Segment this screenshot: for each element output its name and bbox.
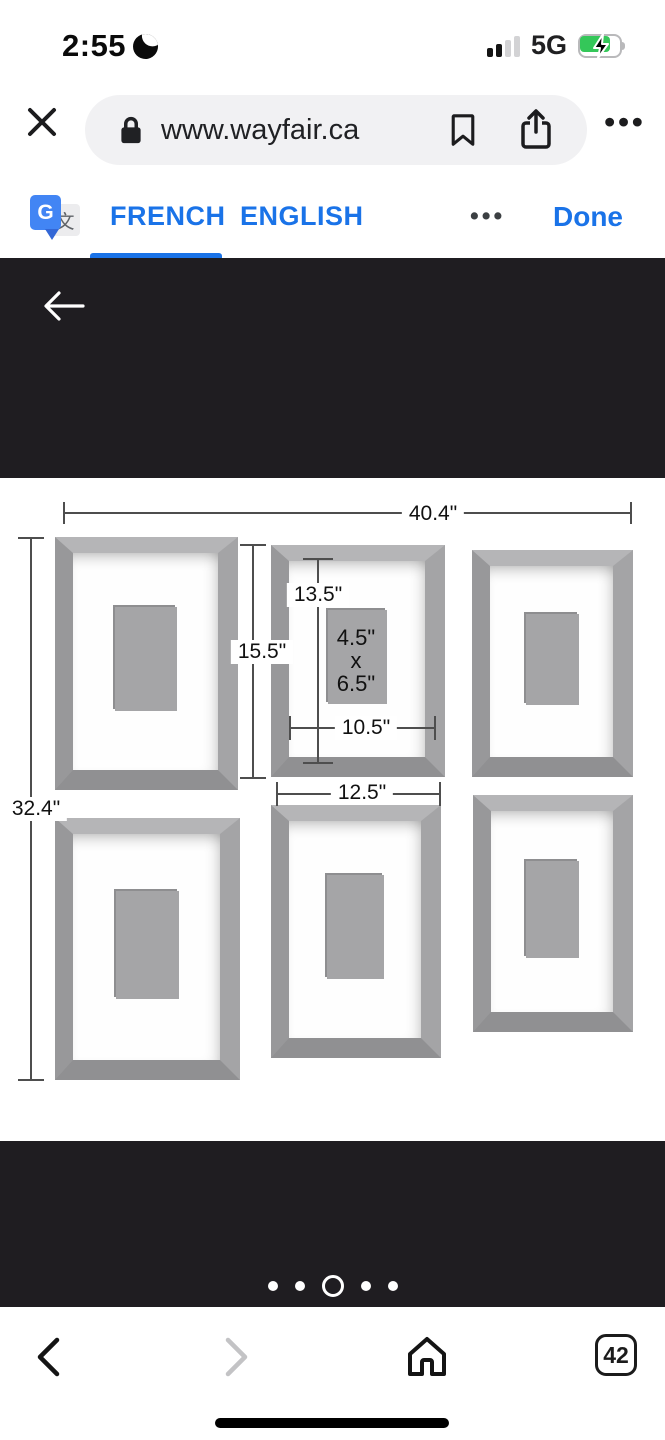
picture-frame — [473, 795, 633, 1032]
home-icon — [403, 1334, 451, 1380]
browser-bottom-nav: 42 — [0, 1307, 665, 1440]
dimension-frame-width: 12.5" — [331, 781, 393, 805]
product-dimensions-image: 40.4" 32.4" 15.5" 13.5" 4.5" x 6.5" 10.5… — [0, 478, 665, 1141]
tab-target-language[interactable]: ENGLISH — [240, 180, 364, 253]
dimension-opening-height: 13.5" — [287, 583, 349, 607]
carousel-dot-active[interactable] — [322, 1275, 344, 1297]
carousel-dot[interactable] — [388, 1281, 398, 1291]
clock: 2:55 — [62, 28, 126, 64]
arrow-left-icon — [41, 286, 87, 326]
photo-placeholder — [526, 614, 579, 706]
nav-forward-button-disabled[interactable] — [209, 1329, 265, 1385]
dimension-total-width: 40.4" — [402, 502, 464, 526]
do-not-disturb-moon-icon — [131, 31, 161, 61]
photo-placeholder — [116, 891, 179, 999]
dimension-photo-size: 4.5" x 6.5" — [337, 626, 375, 695]
bookmark-icon[interactable] — [447, 110, 479, 150]
google-translate-icon: 文 G — [30, 195, 80, 245]
chevron-left-icon — [33, 1336, 63, 1378]
photo-placeholder — [526, 861, 578, 957]
status-bar: 2:55 5G — [0, 0, 665, 88]
url-bar[interactable]: www.wayfair.ca — [85, 95, 587, 165]
image-viewer-footer — [0, 1141, 665, 1307]
done-button[interactable]: Done — [553, 180, 623, 253]
tab-count-button[interactable]: 42 — [595, 1334, 637, 1376]
carousel-dot[interactable] — [295, 1281, 305, 1291]
overflow-dots-icon: ••• — [604, 104, 646, 140]
close-icon — [25, 105, 59, 139]
browser-toolbar: www.wayfair.ca ••• — [0, 88, 665, 180]
tab-source-language[interactable]: FRENCH — [110, 180, 226, 253]
chevron-right-icon — [222, 1336, 252, 1378]
cellular-signal-icon — [487, 35, 520, 57]
lightning-bolt-icon — [590, 32, 612, 60]
picture-frame — [271, 805, 441, 1058]
carousel-dot[interactable] — [361, 1281, 371, 1291]
network-type: 5G — [531, 30, 567, 61]
back-button[interactable] — [40, 284, 88, 328]
dimension-frame-height: 15.5" — [231, 640, 293, 664]
dimension-line-total-width — [64, 512, 632, 514]
close-button[interactable] — [20, 100, 64, 144]
home-indicator[interactable] — [215, 1418, 449, 1428]
carousel-dots — [0, 1275, 665, 1297]
dimension-opening-width: 10.5" — [335, 716, 397, 740]
picture-frame — [55, 537, 238, 790]
nav-back-button[interactable] — [20, 1329, 76, 1385]
url-text[interactable]: www.wayfair.ca — [161, 114, 447, 147]
tab-count: 42 — [603, 1342, 629, 1369]
carousel-dot[interactable] — [268, 1281, 278, 1291]
battery-charging-icon — [578, 34, 625, 58]
translate-options-button[interactable]: ••• — [470, 180, 505, 253]
picture-frame — [55, 818, 240, 1080]
share-icon[interactable] — [517, 108, 555, 152]
lock-icon — [117, 114, 145, 146]
photo-placeholder — [327, 875, 384, 979]
translate-bar: 文 G FRENCH ENGLISH ••• Done — [0, 180, 665, 258]
photo-placeholder — [115, 607, 177, 711]
image-viewer-header — [0, 258, 665, 478]
browser-menu-button[interactable]: ••• — [599, 100, 651, 144]
nav-home-button[interactable] — [399, 1329, 455, 1385]
dimension-total-height: 32.4" — [5, 797, 67, 821]
picture-frame — [472, 550, 633, 777]
